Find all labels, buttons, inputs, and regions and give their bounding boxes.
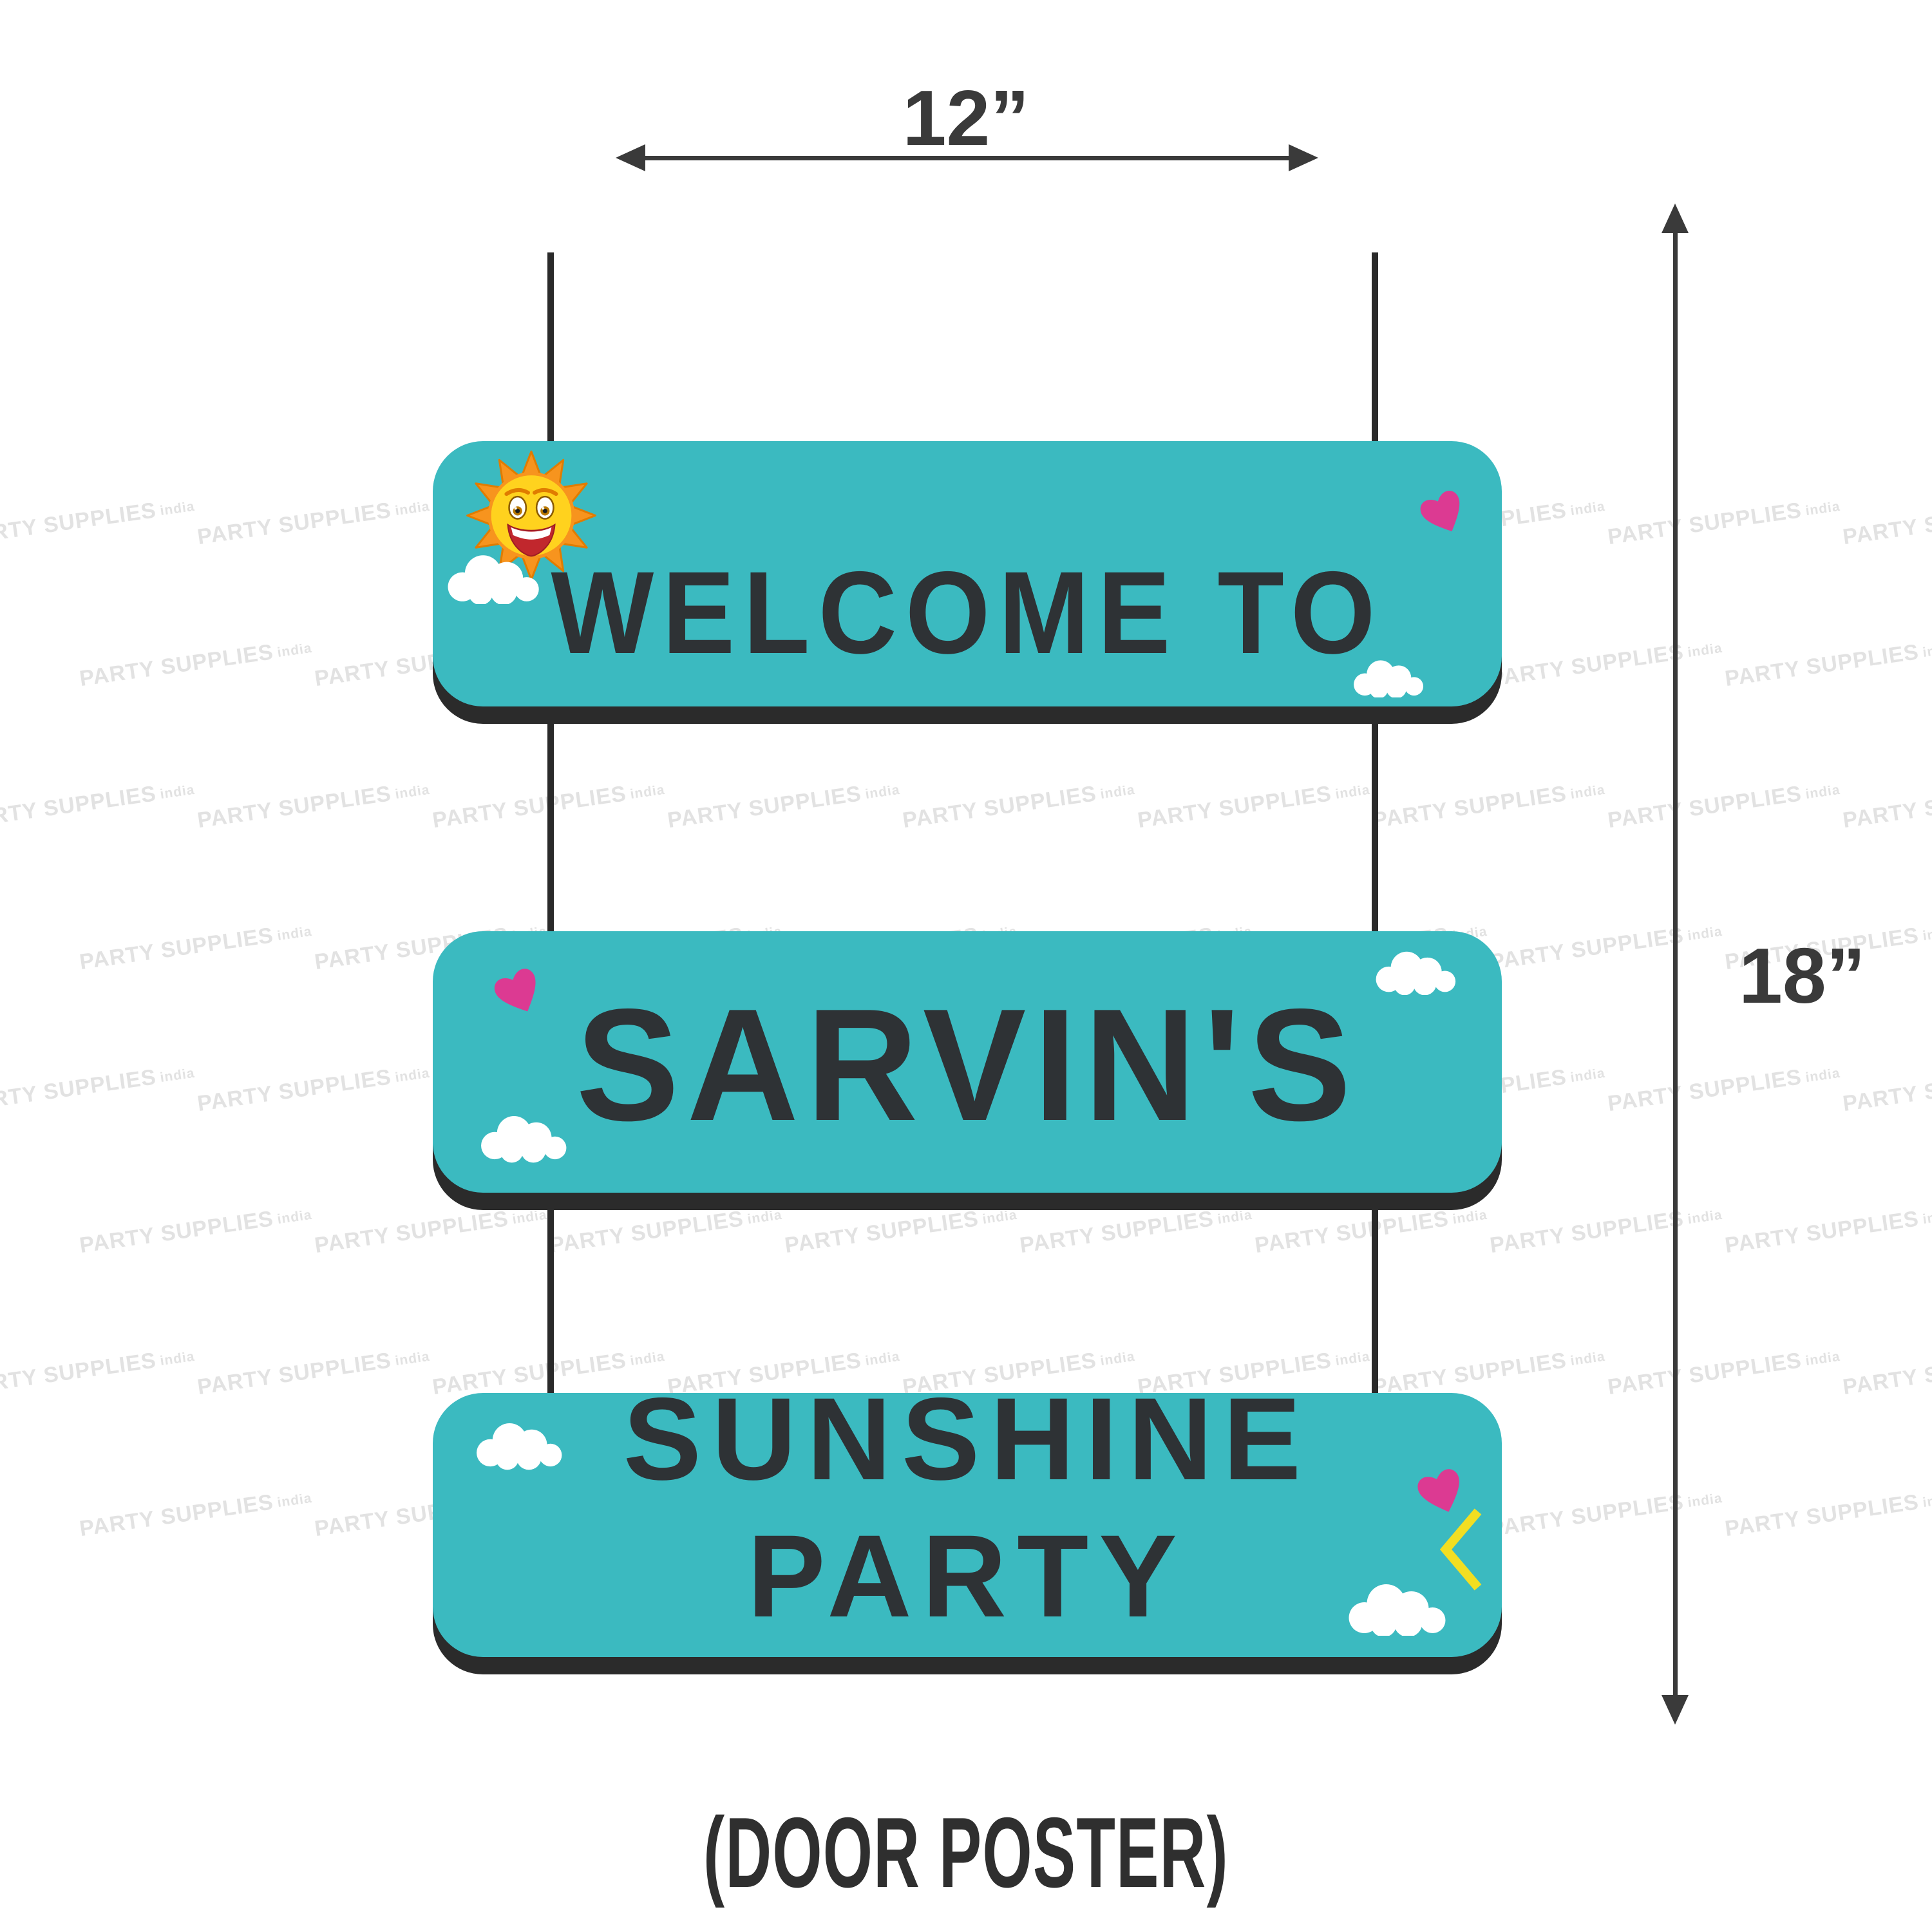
watermark-main: PARTY SUPPLIES — [78, 639, 275, 691]
watermark-text: PARTY SUPPLIESindia — [901, 1343, 1137, 1400]
watermark-text: PARTY SUPPLIESindia — [666, 1343, 902, 1400]
sign-board-party: SUNSHINE PARTY — [433, 1393, 1502, 1657]
watermark-text: PARTY SUPPLIESindia — [78, 1484, 314, 1542]
watermark-text: PARTY SUPPLIESindia — [1841, 1059, 1932, 1117]
watermark-suffix: india — [159, 782, 196, 802]
watermark-main: PARTY SUPPLIES — [1841, 781, 1932, 833]
watermark-suffix: india — [1804, 1349, 1841, 1368]
height-dimension-label: 18” — [1739, 931, 1866, 1021]
watermark-suffix: india — [394, 499, 431, 518]
caption-door-poster: (DOOR POSTER) — [348, 1795, 1584, 1910]
watermark-text: PARTY SUPPLIESindia — [1488, 1484, 1724, 1542]
watermark-suffix: india — [276, 924, 313, 943]
watermark-suffix: india — [159, 1066, 196, 1085]
watermark-text: PARTY SUPPLIESindia — [78, 1201, 314, 1258]
watermark-text: PARTY SUPPLIESindia — [78, 634, 314, 692]
watermark-main: PARTY SUPPLIES — [0, 498, 158, 549]
watermark-text: PARTY SUPPLIESindia — [0, 493, 196, 550]
watermark-suffix: india — [1569, 1066, 1606, 1085]
watermark-suffix: india — [1922, 924, 1932, 943]
height-dimension-line — [1673, 228, 1678, 1699]
watermark-suffix: india — [1687, 1207, 1723, 1227]
watermark-main: PARTY SUPPLIES — [1371, 1348, 1568, 1399]
watermark-text: PARTY SUPPLIESindia — [1723, 1201, 1932, 1258]
watermark-main: PARTY SUPPLIES — [0, 781, 158, 833]
width-dimension-label: 12” — [837, 73, 1095, 163]
watermark-main: PARTY SUPPLIES — [1606, 1348, 1803, 1399]
watermark-text: PARTY SUPPLIESindia — [196, 1059, 431, 1117]
board-text-line1: SARVIN'S — [449, 985, 1486, 1144]
watermark-main: PARTY SUPPLIES — [1488, 1206, 1685, 1258]
watermark-text: PARTY SUPPLIESindia — [1606, 776, 1842, 833]
watermark-main: PARTY SUPPLIES — [196, 781, 393, 833]
watermark-suffix: india — [629, 1349, 666, 1368]
watermark-main: PARTY SUPPLIES — [1488, 923, 1685, 974]
watermark-text: PARTY SUPPLIESindia — [196, 1343, 431, 1400]
watermark-text: PARTY SUPPLIESindia — [1488, 634, 1724, 692]
watermark-suffix: india — [1334, 1349, 1371, 1368]
watermark-suffix: india — [1804, 782, 1841, 802]
board-text-line2: PARTY — [433, 1517, 1502, 1634]
watermark-suffix: india — [746, 1207, 783, 1227]
watermark-main: PARTY SUPPLIES — [548, 1206, 745, 1258]
watermark-main: PARTY SUPPLIES — [1253, 1206, 1450, 1258]
watermark-suffix: india — [981, 1207, 1018, 1227]
watermark-text: PARTY SUPPLIESindia — [78, 918, 314, 975]
watermark-suffix: india — [511, 1207, 548, 1227]
watermark-main: PARTY SUPPLIES — [1488, 1490, 1685, 1541]
watermark-text: PARTY SUPPLIESindia — [1606, 1059, 1842, 1117]
watermark-main: PARTY SUPPLIES — [1841, 1065, 1932, 1116]
watermark-text: PARTY SUPPLIESindia — [0, 1343, 196, 1400]
watermark-text: PARTY SUPPLIESindia — [1723, 1484, 1932, 1542]
watermark-text: PARTY SUPPLIESindia — [1723, 634, 1932, 692]
watermark-suffix: india — [1569, 1349, 1606, 1368]
watermark-suffix: india — [394, 1349, 431, 1368]
watermark-text: PARTY SUPPLIESindia — [1136, 776, 1372, 833]
watermark-main: PARTY SUPPLIES — [1841, 498, 1932, 549]
watermark-main: PARTY SUPPLIES — [1136, 1348, 1333, 1399]
watermark-text: PARTY SUPPLIESindia — [1606, 1343, 1842, 1400]
width-dimension-line — [640, 156, 1294, 160]
watermark-main: PARTY SUPPLIES — [1136, 781, 1333, 833]
watermark-suffix: india — [864, 782, 901, 802]
watermark-suffix: india — [276, 1207, 313, 1227]
sign-board-welcome: WELCOME TO — [433, 441, 1502, 706]
watermark-suffix: india — [1687, 641, 1723, 660]
watermark-text: PARTY SUPPLIESindia — [196, 493, 431, 550]
watermark-main: PARTY SUPPLIES — [78, 923, 275, 974]
watermark-main: PARTY SUPPLIES — [666, 781, 863, 833]
watermark-suffix: india — [1099, 782, 1136, 802]
watermark-suffix: india — [1922, 641, 1932, 660]
watermark-main: PARTY SUPPLIES — [1723, 1206, 1920, 1258]
watermark-text: PARTY SUPPLIESindia — [1136, 1343, 1372, 1400]
watermark-suffix: india — [1687, 1491, 1723, 1510]
watermark-main: PARTY SUPPLIES — [78, 1490, 275, 1541]
watermark-text: PARTY SUPPLIESindia — [1488, 918, 1724, 975]
watermark-suffix: india — [1569, 499, 1606, 518]
hanging-string-right — [1372, 252, 1378, 1418]
watermark-main: PARTY SUPPLIES — [1723, 1490, 1920, 1541]
watermark-suffix: india — [1922, 1207, 1932, 1227]
watermark-suffix: india — [159, 499, 196, 518]
arrow-down-head-icon — [1662, 1695, 1689, 1725]
watermark-text: PARTY SUPPLIESindia — [1253, 1201, 1489, 1258]
watermark-suffix: india — [629, 782, 666, 802]
watermark-text: PARTY SUPPLIESindia — [0, 776, 196, 833]
watermark-text: PARTY SUPPLIESindia — [313, 1201, 549, 1258]
watermark-text: PARTY SUPPLIESindia — [0, 1059, 196, 1117]
watermark-suffix: india — [394, 1066, 431, 1085]
watermark-suffix: india — [1099, 1349, 1136, 1368]
watermark-main: PARTY SUPPLIES — [0, 1348, 158, 1399]
watermark-main: PARTY SUPPLIES — [901, 1348, 1098, 1399]
watermark-text: PARTY SUPPLIESindia — [548, 1201, 784, 1258]
watermark-suffix: india — [1452, 1207, 1488, 1227]
watermark-main: PARTY SUPPLIES — [431, 781, 628, 833]
watermark-suffix: india — [394, 782, 431, 802]
watermark-main: PARTY SUPPLIES — [1488, 639, 1685, 691]
watermark-main: PARTY SUPPLIES — [783, 1206, 980, 1258]
watermark-main: PARTY SUPPLIES — [0, 1065, 158, 1116]
watermark-suffix: india — [1687, 924, 1723, 943]
watermark-text: PARTY SUPPLIESindia — [196, 776, 431, 833]
watermark-main: PARTY SUPPLIES — [196, 498, 393, 549]
watermark-main: PARTY SUPPLIES — [1606, 781, 1803, 833]
watermark-suffix: india — [1804, 499, 1841, 518]
sign-board-name: SARVIN'S — [433, 931, 1502, 1193]
watermark-text: PARTY SUPPLIESindia — [1841, 1343, 1932, 1400]
watermark-main: PARTY SUPPLIES — [666, 1348, 863, 1399]
watermark-suffix: india — [1922, 1491, 1932, 1510]
watermark-text: PARTY SUPPLIESindia — [1371, 1343, 1607, 1400]
watermark-suffix: india — [1569, 782, 1606, 802]
watermark-main: PARTY SUPPLIES — [1018, 1206, 1215, 1258]
watermark-text: PARTY SUPPLIESindia — [1841, 776, 1932, 833]
watermark-main: PARTY SUPPLIES — [1371, 781, 1568, 833]
watermark-suffix: india — [1334, 782, 1371, 802]
hanging-string-left — [547, 252, 554, 1418]
board-text-line1: SUNSHINE — [433, 1393, 1502, 1497]
watermark-main: PARTY SUPPLIES — [196, 1348, 393, 1399]
watermark-text: PARTY SUPPLIESindia — [783, 1201, 1019, 1258]
watermark-suffix: india — [1217, 1207, 1253, 1227]
door-poster-mockup: PARTY SUPPLIESindiaPARTY SUPPLIESindiaPA… — [0, 0, 1932, 1932]
watermark-suffix: india — [276, 1491, 313, 1510]
watermark-main: PARTY SUPPLIES — [1841, 1348, 1932, 1399]
heart-icon — [1409, 478, 1477, 547]
watermark-text: PARTY SUPPLIESindia — [666, 776, 902, 833]
watermark-text: PARTY SUPPLIESindia — [1488, 1201, 1724, 1258]
watermark-text: PARTY SUPPLIESindia — [1841, 493, 1932, 550]
watermark-main: PARTY SUPPLIES — [1606, 1065, 1803, 1116]
arrow-up-head-icon — [1662, 204, 1689, 233]
watermark-suffix: india — [276, 641, 313, 660]
watermark-main: PARTY SUPPLIES — [1723, 639, 1920, 691]
watermark-suffix: india — [864, 1349, 901, 1368]
watermark-text: PARTY SUPPLIESindia — [901, 776, 1137, 833]
watermark-main: PARTY SUPPLIES — [901, 781, 1098, 833]
arrow-left-head-icon — [616, 144, 645, 171]
watermark-text: PARTY SUPPLIESindia — [1018, 1201, 1254, 1258]
board-text-line1: WELCOME TO — [470, 554, 1464, 671]
watermark-main: PARTY SUPPLIES — [313, 1206, 510, 1258]
watermark-text: PARTY SUPPLIESindia — [1371, 776, 1607, 833]
watermark-main: PARTY SUPPLIES — [1606, 498, 1803, 549]
watermark-suffix: india — [159, 1349, 196, 1368]
watermark-main: PARTY SUPPLIES — [78, 1206, 275, 1258]
watermark-suffix: india — [1804, 1066, 1841, 1085]
watermark-main: PARTY SUPPLIES — [431, 1348, 628, 1399]
watermark-main: PARTY SUPPLIES — [196, 1065, 393, 1116]
watermark-text: PARTY SUPPLIESindia — [1606, 493, 1842, 550]
arrow-right-head-icon — [1289, 144, 1318, 171]
